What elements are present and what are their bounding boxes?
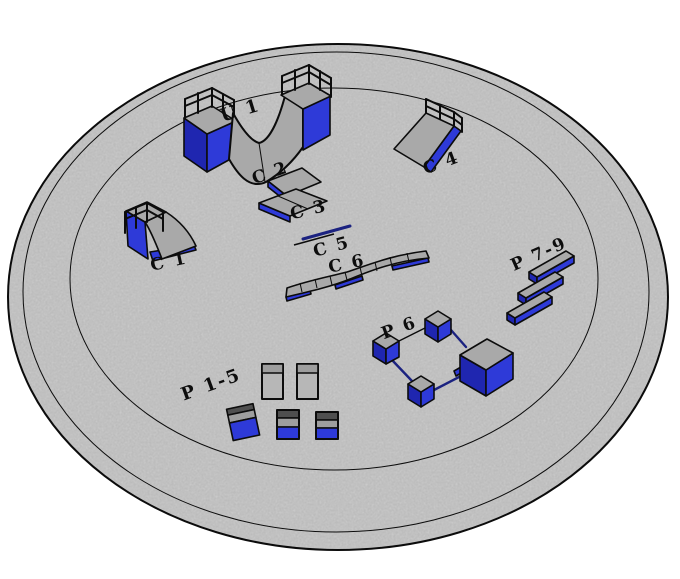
platform	[8, 44, 668, 550]
p1-5-cube-middle	[277, 410, 299, 439]
p1-5-cube-middle-front	[277, 427, 299, 439]
p1-5-cube-right-front	[316, 428, 338, 439]
skatepark-layout-canvas: U 1 C 1 C	[0, 0, 680, 579]
p1-5-cube-right	[316, 412, 338, 439]
p1-5-cube-middle-gray-band	[277, 418, 299, 427]
p1-5-cube-right-dark-band	[316, 412, 338, 420]
p1-5-cube-right-gray-band	[316, 420, 338, 428]
platform-concrete-texture	[8, 44, 668, 550]
skatepark-layout-diagram: U 1 C 1 C	[0, 0, 680, 579]
p1-5-cube-left	[227, 404, 260, 441]
p1-5-cube-middle-dark-band	[277, 410, 299, 418]
p1-5-panel-1-band	[262, 364, 283, 373]
p1-5-panel-2-band	[297, 364, 318, 373]
